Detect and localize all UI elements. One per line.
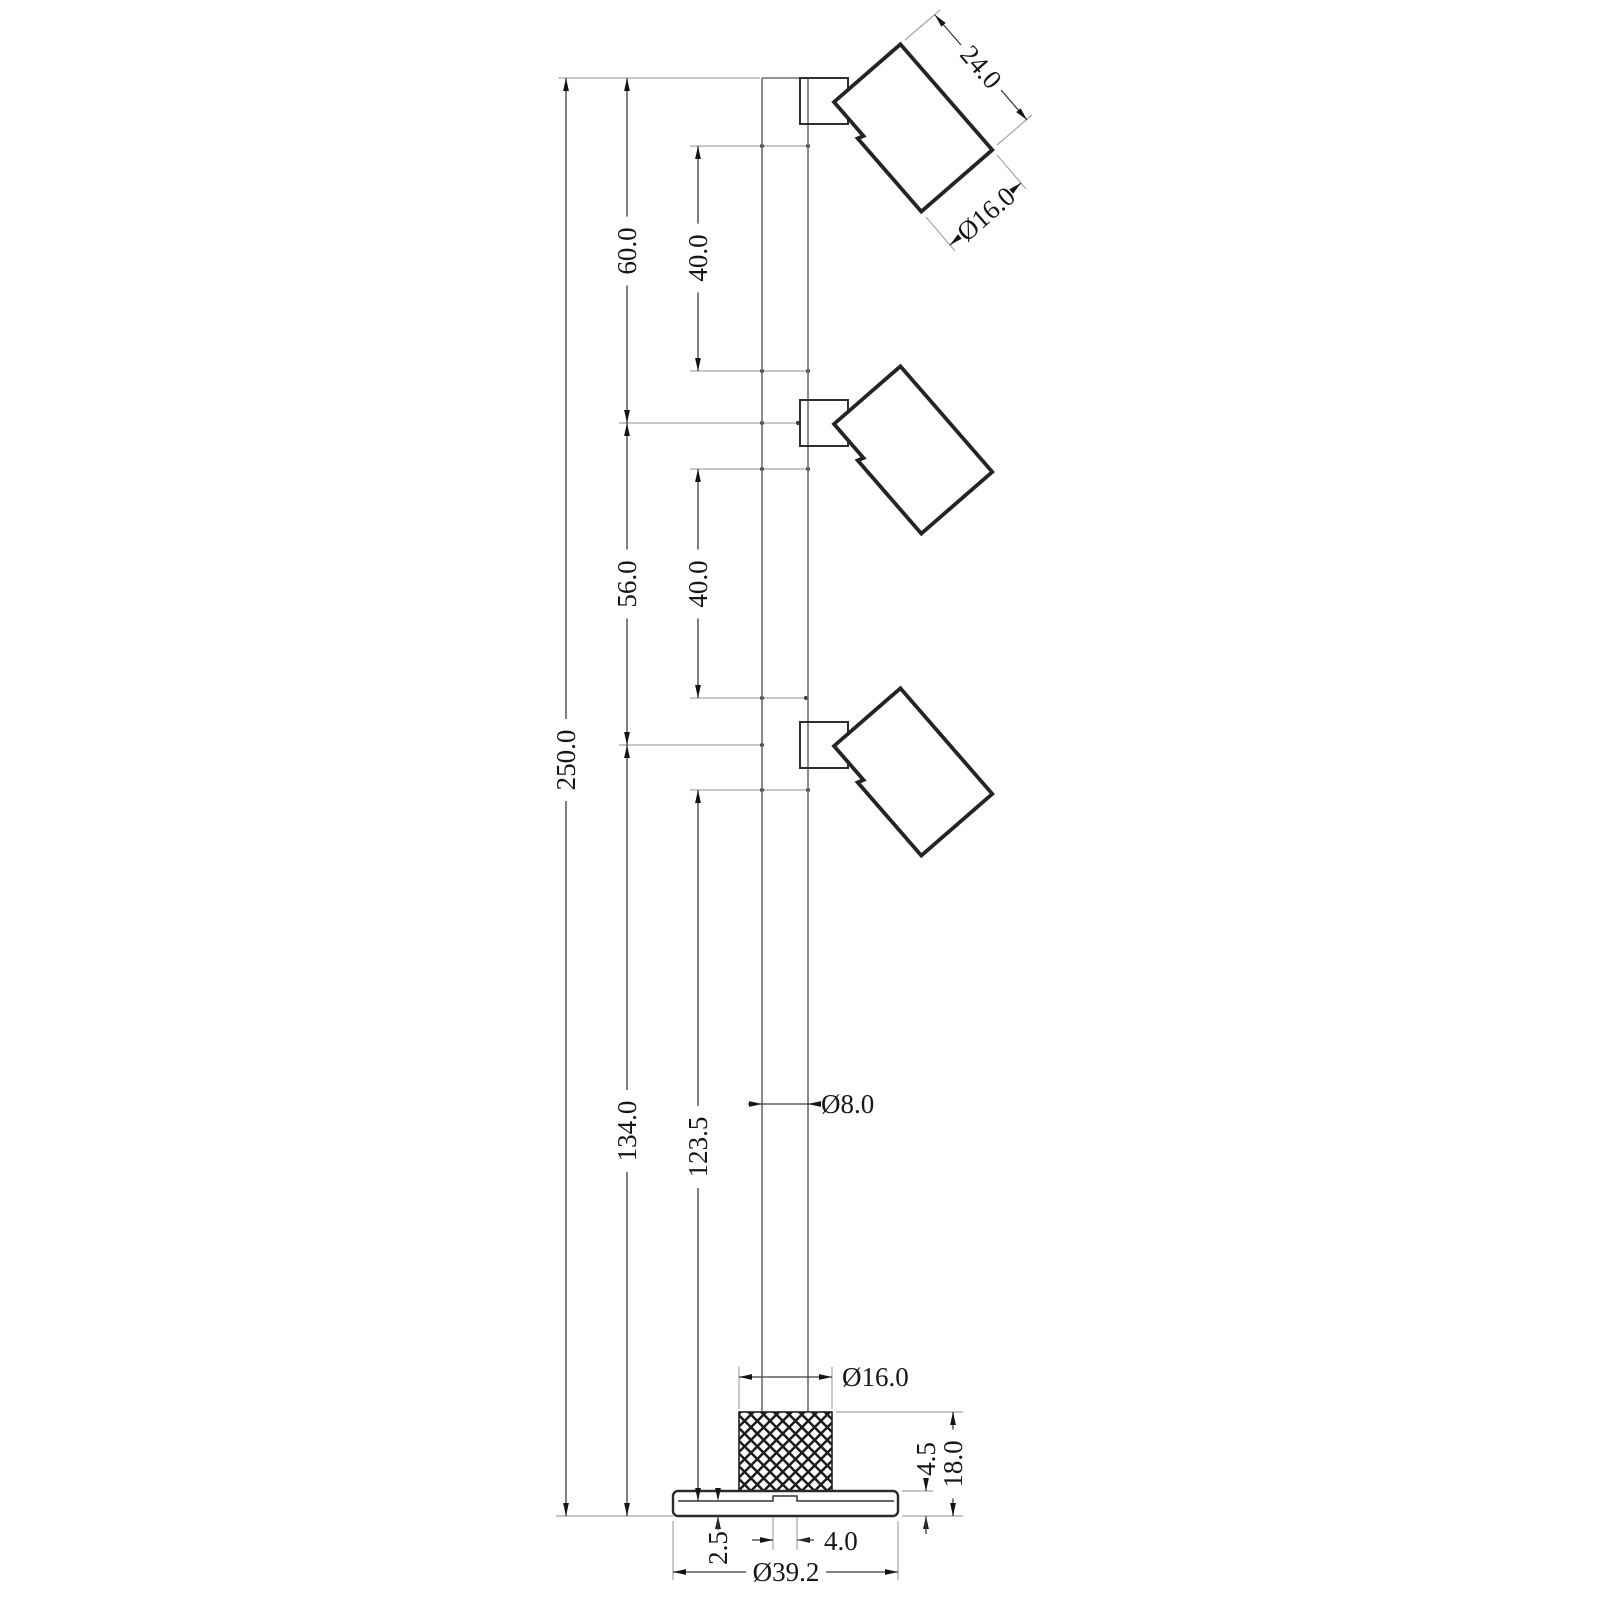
spot-head-2 <box>829 366 992 533</box>
dimension-arrow <box>624 410 630 423</box>
dim-label-cable-notch-width: 4.0 <box>824 1526 858 1556</box>
dimension-arrow <box>950 1412 956 1425</box>
dimension-arrow <box>695 790 701 803</box>
dimension-arrow <box>950 1503 956 1516</box>
spot-head-3 <box>829 688 992 855</box>
dimension-arrow <box>819 1374 832 1380</box>
dimension-arrow <box>624 1503 630 1516</box>
dimension-arrow <box>624 745 630 758</box>
dim-label-pole-diameter: Ø8.0 <box>821 1089 874 1119</box>
dim-label-plate-diameter: Ø39.2 <box>753 1557 820 1587</box>
dimension-arrow <box>695 685 701 698</box>
dimension-arrow <box>739 1374 752 1380</box>
technical-drawing-canvas: 250.060.040.056.040.0134.0123.518.04.52.… <box>0 0 1600 1600</box>
dim-label-head-length: 24.0 <box>954 39 1008 94</box>
dim-label-top-to-head2: 60.0 <box>612 227 642 274</box>
spot-head-outline <box>829 366 992 533</box>
spot-head-outline <box>829 688 992 855</box>
knurled-collar <box>739 1412 832 1491</box>
dim-label-base-height: 18.0 <box>938 1440 968 1487</box>
dim-label-collar-diameter: Ø16.0 <box>842 1362 909 1392</box>
dimension-arrow <box>749 1101 762 1107</box>
extension-line <box>926 217 955 251</box>
dim-label-total-height: 250.0 <box>551 730 581 791</box>
dim-label-head3-to-plate-recess: 123.5 <box>683 1117 713 1178</box>
lamp-dimension-drawing: 250.060.040.056.040.0134.0123.518.04.52.… <box>0 0 1600 1600</box>
dimension-arrow <box>624 732 630 745</box>
dim-label-head2-head3: 56.0 <box>612 560 642 607</box>
dim-label-plate-rim-thickness: 2.5 <box>703 1531 733 1565</box>
dimension-arrow <box>695 358 701 371</box>
extension-line <box>905 10 940 40</box>
dim-label-head2-head3-gap: 40.0 <box>683 560 713 607</box>
dim-label-plate-thickness: 4.5 <box>911 1442 941 1476</box>
dimension-arrow <box>808 1101 821 1107</box>
dim-label-head3-to-base: 134.0 <box>612 1101 642 1162</box>
dimension-arrow <box>885 1569 898 1575</box>
dimension-arrow <box>624 423 630 436</box>
dimension-arrow <box>695 469 701 482</box>
dimension-arrow <box>563 1503 569 1516</box>
dimension-arrow <box>760 1537 773 1543</box>
dimension-arrow <box>673 1569 686 1575</box>
dimension-arrow <box>563 78 569 91</box>
dim-label-head1-head2-gap: 40.0 <box>683 234 713 281</box>
dimension-arrow <box>923 1478 929 1491</box>
base-plate <box>673 1491 898 1516</box>
dimension-arrow <box>624 78 630 91</box>
dimension-arrow <box>695 146 701 159</box>
